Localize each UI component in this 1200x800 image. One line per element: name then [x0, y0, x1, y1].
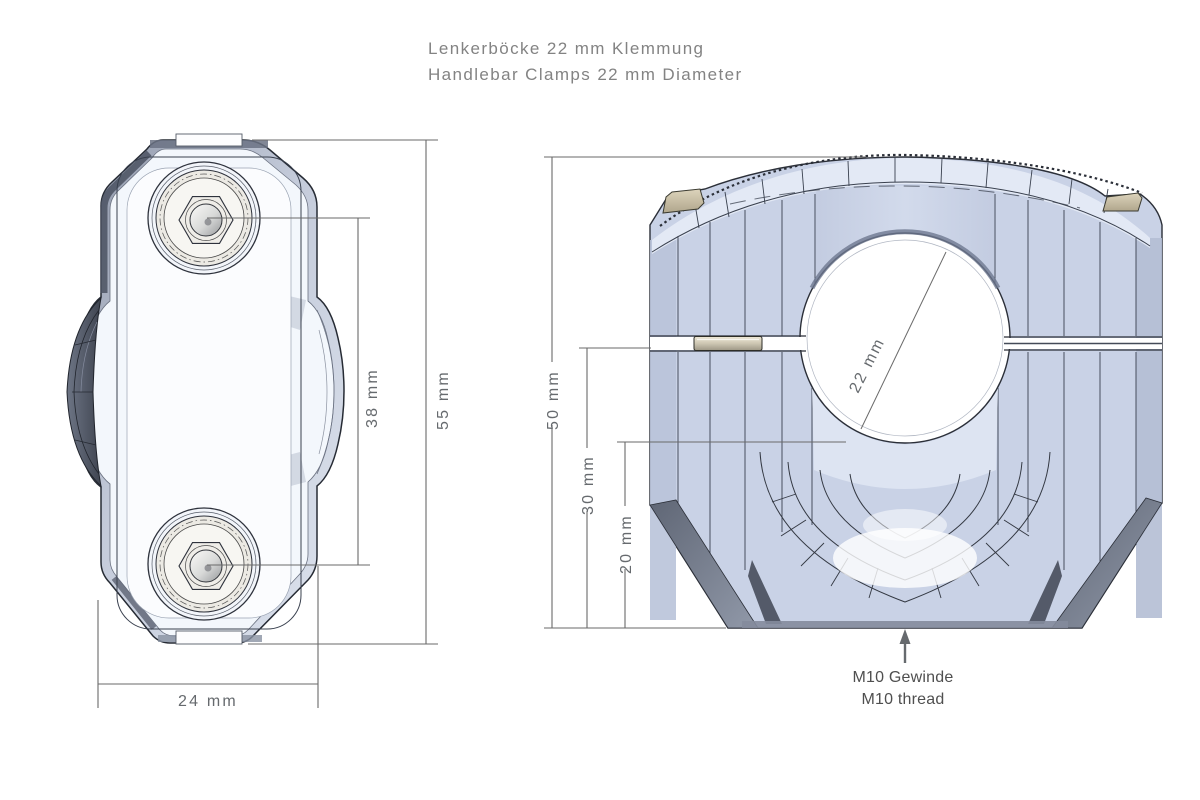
dim-label-30mm: 30 mm — [580, 455, 597, 515]
thread-note-de: M10 Gewinde — [853, 669, 954, 686]
thread-note-arrow — [900, 629, 911, 663]
technical-drawing: 38 mm 55 mm 24 mm 50 mm 30 mm 20 mm 22 m… — [0, 0, 1200, 800]
bottom-bolt-boss — [148, 508, 260, 620]
front-bottom-strip — [742, 621, 1068, 628]
front-pocket-glow-small — [863, 509, 947, 541]
dim-label-38mm: 38 mm — [364, 368, 381, 428]
drawing-title-de: Lenkerböcke 22 mm Klemmung — [428, 36, 743, 62]
drawing-title: Lenkerböcke 22 mm Klemmung Handlebar Cla… — [428, 36, 743, 88]
front-view — [650, 155, 1162, 628]
drawing-title-en: Handlebar Clamps 22 mm Diameter — [428, 62, 743, 88]
clamp-screw-left — [663, 189, 704, 213]
gap-washer — [694, 337, 762, 351]
dim-label-20mm: 20 mm — [618, 514, 635, 574]
dim-label-24mm: 24 mm — [178, 693, 238, 710]
top-view-bottom-tab — [176, 631, 242, 644]
dim-label-55mm: 55 mm — [435, 370, 452, 430]
thread-note-en: M10 thread — [862, 691, 945, 708]
top-view-top-tab — [176, 134, 242, 146]
front-facet-right-dark — [1136, 238, 1162, 618]
front-facet-left-dark — [650, 240, 676, 620]
top-view — [67, 134, 344, 644]
dim-label-50mm: 50 mm — [545, 370, 562, 430]
drawing-canvas: Lenkerböcke 22 mm Klemmung Handlebar Cla… — [0, 0, 1200, 800]
